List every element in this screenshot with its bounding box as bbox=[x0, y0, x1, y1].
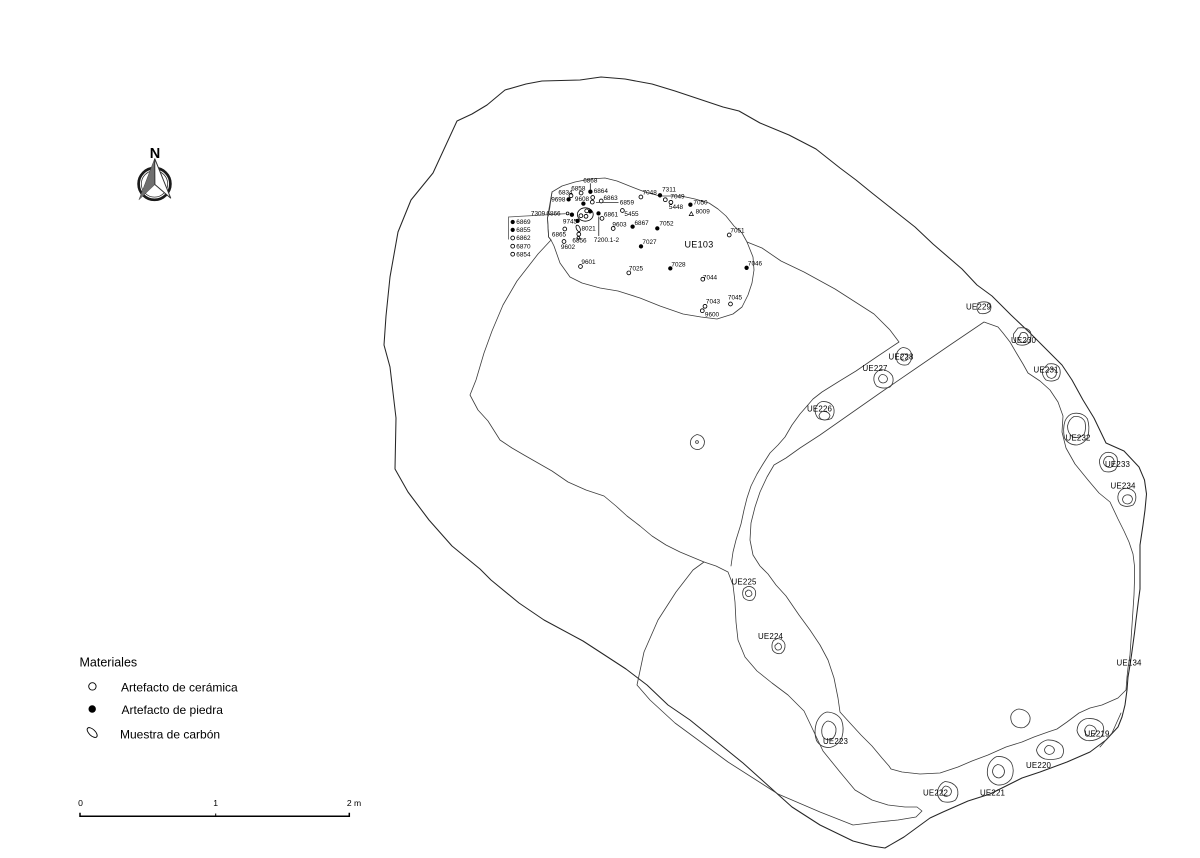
svg-text:UE225: UE225 bbox=[732, 578, 758, 587]
svg-text:UE233: UE233 bbox=[1105, 460, 1131, 469]
svg-text:7027: 7027 bbox=[642, 239, 657, 246]
svg-text:UE231: UE231 bbox=[1034, 366, 1059, 375]
svg-text:UE219: UE219 bbox=[1085, 730, 1111, 739]
svg-text:UE229: UE229 bbox=[966, 303, 992, 312]
svg-text:7048: 7048 bbox=[643, 189, 658, 196]
svg-text:Materiales: Materiales bbox=[80, 656, 138, 670]
svg-text:6864: 6864 bbox=[594, 188, 609, 195]
svg-text:7025: 7025 bbox=[629, 265, 644, 272]
svg-text:1: 1 bbox=[213, 798, 218, 808]
svg-text:Artefacto de piedra: Artefacto de piedra bbox=[122, 703, 224, 717]
svg-text:6868: 6868 bbox=[583, 178, 598, 185]
svg-text:8021: 8021 bbox=[581, 226, 596, 233]
svg-text:5448: 5448 bbox=[669, 204, 684, 211]
svg-text:UE220: UE220 bbox=[1026, 761, 1052, 770]
svg-text:6865: 6865 bbox=[552, 231, 567, 238]
svg-text:6867: 6867 bbox=[634, 220, 649, 227]
svg-text:9600: 9600 bbox=[705, 312, 720, 319]
svg-text:7045: 7045 bbox=[728, 295, 743, 302]
svg-text:UE234: UE234 bbox=[1111, 482, 1137, 491]
svg-text:6858: 6858 bbox=[571, 185, 586, 192]
svg-text:7051: 7051 bbox=[730, 228, 745, 235]
svg-text:7028: 7028 bbox=[671, 261, 686, 268]
svg-text:2 m: 2 m bbox=[347, 798, 361, 808]
svg-text:6855: 6855 bbox=[516, 227, 531, 234]
svg-text:5455: 5455 bbox=[624, 211, 639, 218]
svg-text:6834: 6834 bbox=[558, 189, 573, 196]
svg-text:6863: 6863 bbox=[603, 195, 618, 202]
svg-text:6854: 6854 bbox=[516, 251, 531, 258]
svg-text:7309: 7309 bbox=[531, 211, 546, 218]
svg-text:9745: 9745 bbox=[563, 218, 578, 225]
svg-text:UE103: UE103 bbox=[685, 239, 714, 249]
svg-text:UE228: UE228 bbox=[889, 353, 915, 362]
svg-text:7052: 7052 bbox=[659, 221, 674, 228]
svg-text:0: 0 bbox=[78, 798, 83, 808]
svg-text:7044: 7044 bbox=[703, 275, 718, 282]
svg-text:9608: 9608 bbox=[575, 196, 590, 203]
svg-text:7046: 7046 bbox=[748, 260, 763, 267]
svg-text:7050: 7050 bbox=[693, 199, 708, 206]
svg-text:UE230: UE230 bbox=[1011, 336, 1037, 345]
svg-text:UE224: UE224 bbox=[758, 632, 784, 641]
svg-text:9603: 9603 bbox=[612, 222, 627, 229]
svg-text:Artefacto de cerámica: Artefacto de cerámica bbox=[121, 680, 238, 694]
svg-text:6869: 6869 bbox=[516, 219, 531, 226]
svg-text:UE222: UE222 bbox=[923, 789, 948, 798]
svg-text:6859: 6859 bbox=[620, 199, 635, 206]
svg-text:9601: 9601 bbox=[581, 259, 596, 266]
svg-text:UE223: UE223 bbox=[823, 737, 849, 746]
svg-text:6861: 6861 bbox=[604, 212, 619, 219]
svg-text:UE226: UE226 bbox=[807, 405, 833, 414]
svg-text:7043: 7043 bbox=[706, 299, 721, 306]
svg-text:Muestra de carbón: Muestra de carbón bbox=[120, 727, 220, 741]
svg-text:7049: 7049 bbox=[670, 193, 685, 200]
svg-text:6866: 6866 bbox=[546, 211, 561, 218]
svg-text:UE232: UE232 bbox=[1066, 434, 1091, 443]
svg-text:9602: 9602 bbox=[561, 244, 576, 251]
svg-text:8009: 8009 bbox=[696, 209, 711, 216]
svg-text:UE221: UE221 bbox=[980, 789, 1005, 798]
svg-text:7200.1-2: 7200.1-2 bbox=[594, 237, 620, 244]
svg-text:UE227: UE227 bbox=[863, 364, 888, 373]
svg-text:6862: 6862 bbox=[516, 235, 531, 242]
svg-text:6870: 6870 bbox=[516, 243, 531, 250]
svg-text:9698: 9698 bbox=[551, 196, 566, 203]
svg-text:UE134: UE134 bbox=[1117, 659, 1143, 668]
